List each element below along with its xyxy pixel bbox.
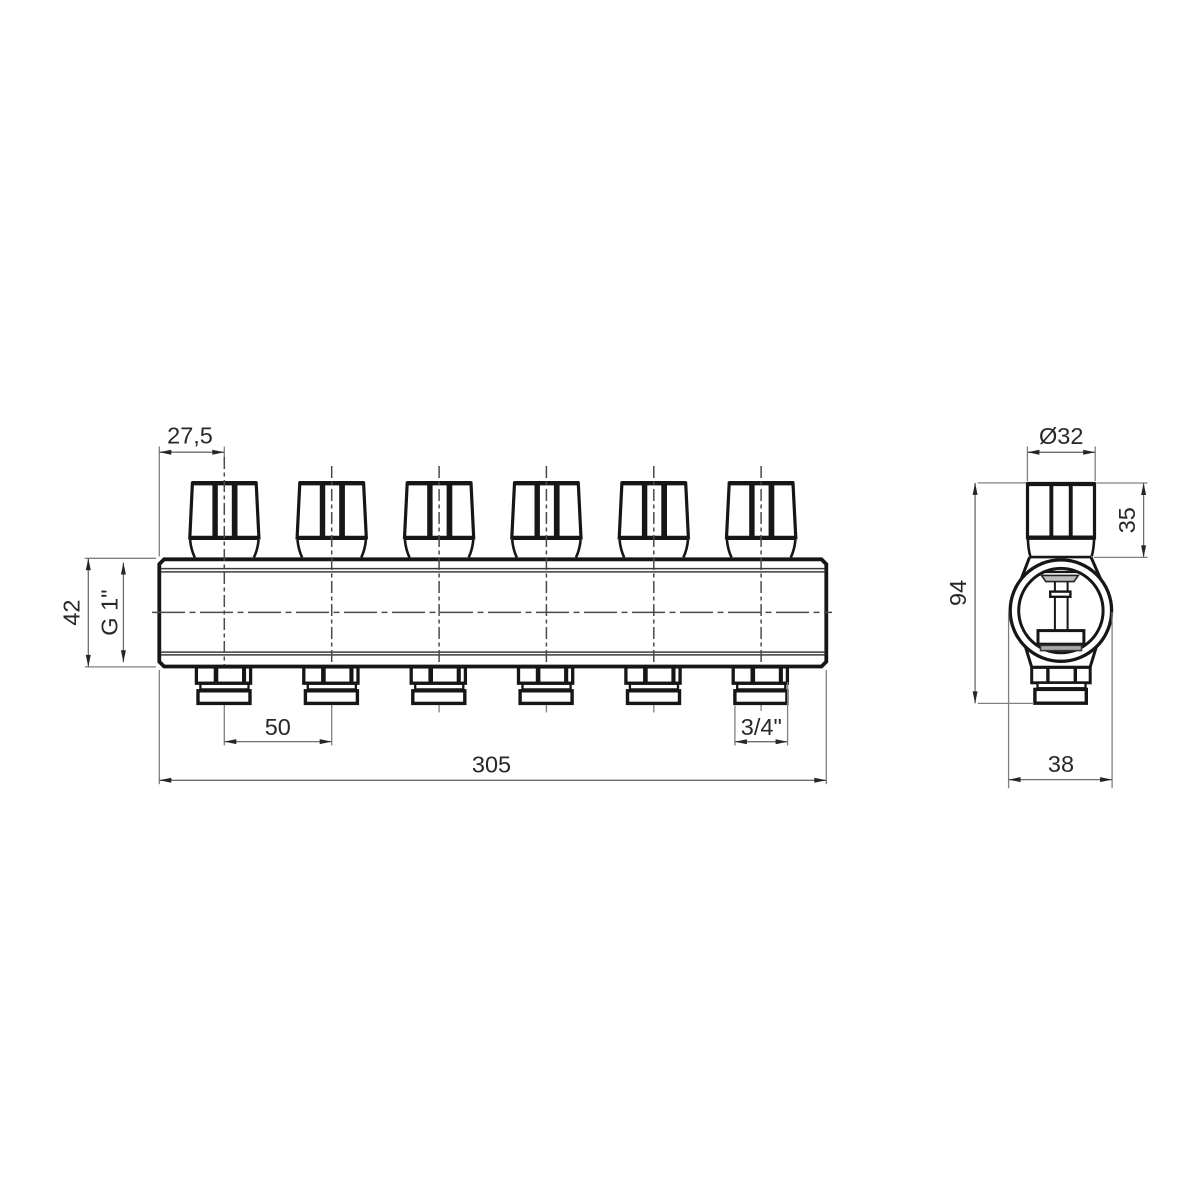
svg-text:Ø32: Ø32 <box>1039 423 1083 449</box>
svg-text:94: 94 <box>945 580 971 606</box>
svg-text:3/4": 3/4" <box>741 714 782 740</box>
svg-text:305: 305 <box>472 752 511 778</box>
svg-text:50: 50 <box>265 714 291 740</box>
svg-text:27,5: 27,5 <box>167 423 213 449</box>
svg-text:38: 38 <box>1048 751 1074 777</box>
svg-text:42: 42 <box>59 600 85 626</box>
svg-text:G 1": G 1" <box>97 589 123 635</box>
svg-text:35: 35 <box>1114 507 1140 533</box>
